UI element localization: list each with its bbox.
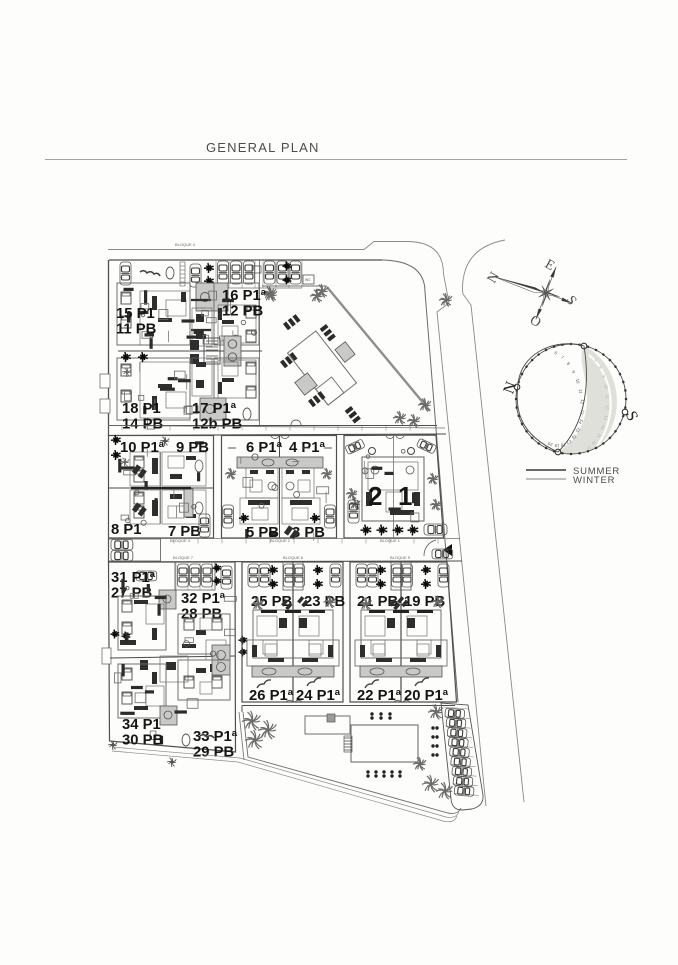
svg-text:32 P1ª: 32 P1ª bbox=[181, 591, 226, 607]
svg-text:17 P1ª: 17 P1ª bbox=[192, 401, 237, 417]
svg-text:12b PB: 12b PB bbox=[192, 416, 242, 432]
svg-text:24 P1ª: 24 P1ª bbox=[296, 688, 341, 704]
svg-text:GENERAL PLAN: GENERAL PLAN bbox=[206, 140, 320, 155]
svg-text:BLOQUE 4: BLOQUE 4 bbox=[175, 242, 196, 247]
svg-text:11: 11 bbox=[578, 389, 583, 394]
svg-text:18: 18 bbox=[560, 442, 566, 447]
svg-text:31 P1ª: 31 P1ª bbox=[111, 570, 156, 586]
svg-text:18 P1: 18 P1 bbox=[122, 401, 161, 417]
svg-text:14 PB: 14 PB bbox=[122, 416, 163, 432]
svg-text:9 PB: 9 PB bbox=[176, 440, 209, 456]
svg-text:2: 2 bbox=[368, 481, 382, 511]
svg-text:22 P1ª: 22 P1ª bbox=[357, 688, 402, 704]
svg-text:WINTER: WINTER bbox=[573, 475, 615, 486]
svg-text:8 P1: 8 P1 bbox=[111, 522, 141, 538]
svg-text:12 PB: 12 PB bbox=[222, 303, 263, 319]
svg-text:6 P1ª: 6 P1ª bbox=[246, 440, 282, 456]
svg-text:20 P1ª: 20 P1ª bbox=[404, 688, 449, 704]
svg-text:BLOQUE 7: BLOQUE 7 bbox=[173, 555, 194, 560]
svg-text:1: 1 bbox=[398, 481, 412, 511]
svg-text:11 PB: 11 PB bbox=[116, 321, 157, 337]
svg-text:10 P1ª: 10 P1ª bbox=[120, 440, 165, 456]
svg-text:34 P1: 34 P1 bbox=[122, 717, 161, 733]
svg-text:15 P1: 15 P1 bbox=[116, 306, 155, 322]
svg-text:30 PB: 30 PB bbox=[122, 732, 163, 748]
svg-text:27 PB: 27 PB bbox=[111, 585, 152, 601]
svg-text:33 P1ª: 33 P1ª bbox=[193, 729, 238, 745]
svg-text:29 PB: 29 PB bbox=[193, 744, 234, 760]
svg-text:BLOQUE 5: BLOQUE 5 bbox=[390, 555, 411, 560]
svg-text:26 P1ª: 26 P1ª bbox=[249, 688, 294, 704]
svg-text:BLOQUE 6: BLOQUE 6 bbox=[283, 555, 304, 560]
svg-text:WC: WC bbox=[305, 278, 311, 282]
